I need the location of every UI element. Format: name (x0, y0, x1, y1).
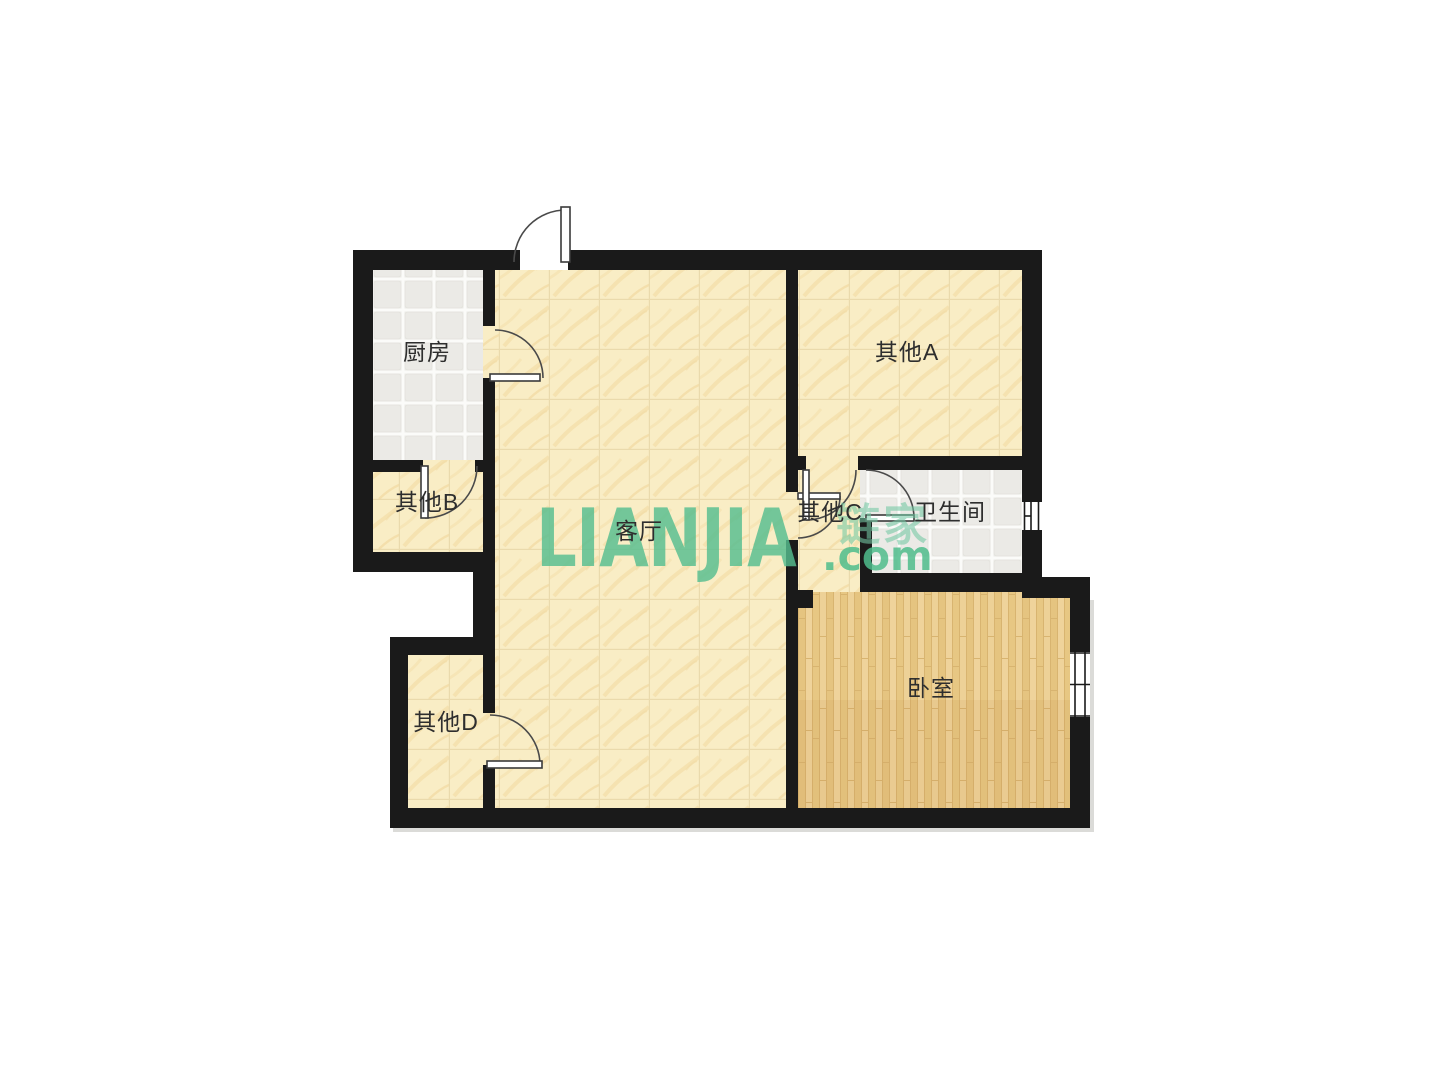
wall-segment (858, 456, 1023, 470)
wall-segment (568, 250, 1042, 270)
wall-segment (483, 378, 495, 472)
watermark: LIANJIA 链家 .com (536, 492, 933, 585)
wall-segment (483, 765, 495, 808)
room-label-kitchen: 厨房 (403, 339, 451, 365)
wall-segment (483, 472, 495, 552)
watermark-lianjia-text: LIANJIA (536, 492, 797, 585)
wall-segment (798, 590, 813, 608)
wall-segment (353, 270, 373, 572)
wall-segment (1070, 598, 1090, 652)
wall-segment (353, 250, 520, 270)
room-label-bedroom: 卧室 (907, 675, 955, 701)
room-label-other-c: 其他C (797, 499, 863, 525)
doorway-gap (423, 460, 475, 472)
floor-plan-svg: LIANJIA 链家 .com 厨房 其他A 其他B 客厅 其他C 卫生间 其他… (0, 0, 1440, 1080)
shadow-line (393, 828, 1093, 832)
shadow-line (1090, 600, 1094, 832)
doorway-gap (483, 713, 495, 765)
wall-segment (353, 552, 495, 572)
room-label-bathroom: 卫生间 (914, 499, 986, 525)
wall-segment (786, 270, 798, 492)
room-floor-kitchen (373, 270, 483, 460)
wall-segment (1022, 456, 1042, 502)
wall-segment (1070, 717, 1090, 808)
wall-segment (390, 655, 408, 828)
wall-segment (475, 460, 495, 472)
room-label-other-b: 其他B (395, 489, 459, 515)
bathroom-window (1022, 502, 1042, 530)
room-label-other-a: 其他A (875, 339, 939, 365)
wall-segment (390, 637, 483, 655)
bedroom-window (1070, 652, 1090, 717)
bedroom-floor-shading (798, 700, 1070, 808)
doorway-gap (483, 326, 495, 378)
wall-segment (798, 456, 806, 470)
wall-segment (483, 655, 495, 713)
door-leaf (490, 374, 540, 381)
door-leaf (487, 761, 542, 768)
wall-segment (1022, 270, 1042, 456)
floor-plan-canvas: LIANJIA 链家 .com 厨房 其他A 其他B 客厅 其他C 卫生间 其他… (0, 0, 1440, 1080)
door-leaf (561, 207, 570, 262)
wall-segment (373, 460, 423, 472)
wall-segment (1042, 577, 1090, 598)
room-label-living: 客厅 (615, 518, 663, 544)
wall-segment (390, 808, 1090, 828)
wall-segment (483, 270, 495, 326)
room-label-other-d: 其他D (413, 709, 479, 735)
doorway-gap (806, 456, 858, 470)
watermark-com-text: .com (822, 532, 933, 580)
